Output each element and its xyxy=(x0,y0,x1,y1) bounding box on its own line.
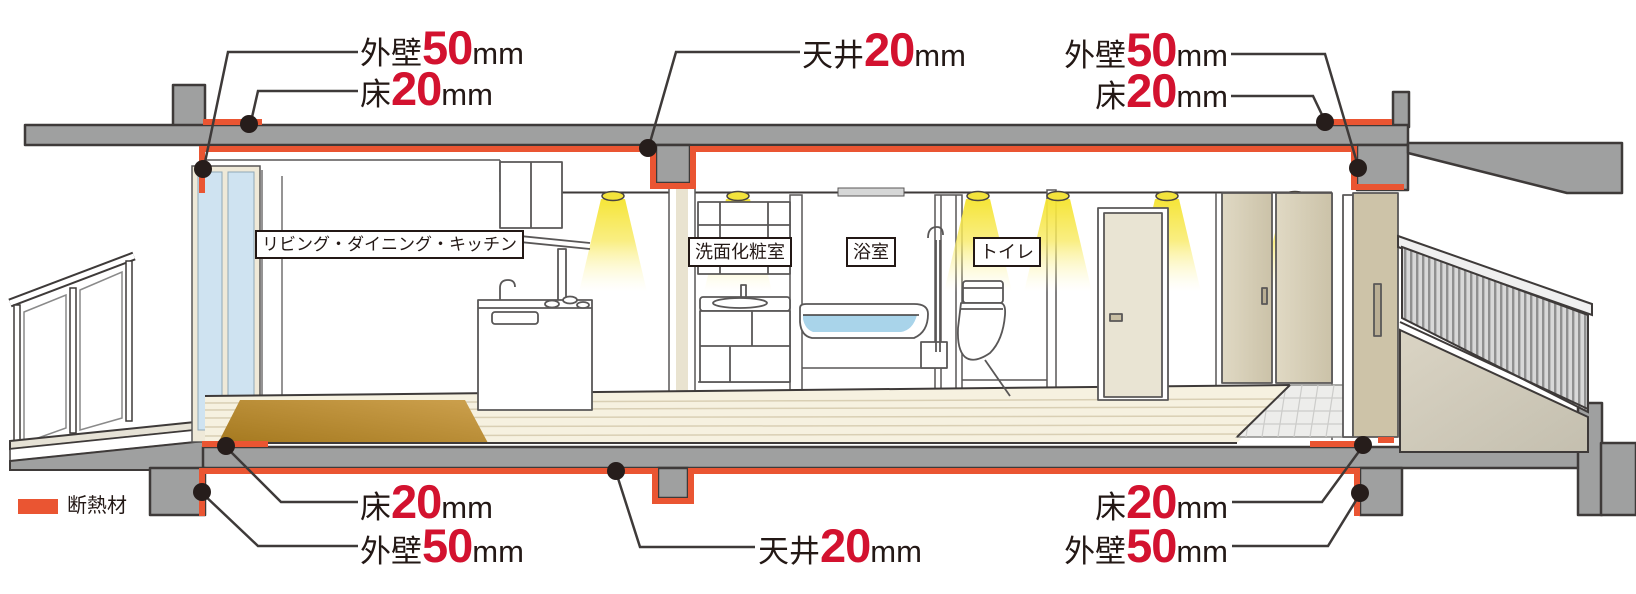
kitchen-faucet xyxy=(500,280,515,300)
bath-water xyxy=(803,315,917,332)
ldk-rug xyxy=(218,400,488,443)
hall-door xyxy=(1098,208,1168,400)
downlight-icon xyxy=(579,192,647,293)
bath-ceiling-vent xyxy=(838,188,904,196)
room-label-bathroom: 浴室 xyxy=(846,237,896,267)
upper-wall-stub-right xyxy=(1393,92,1409,127)
toilet xyxy=(958,281,1010,396)
insulation-cross-section-diagram: リビング・ダイニング・キッチン 洗面化粧室 浴室 トイレ 外壁50mm 床20m… xyxy=(0,0,1636,594)
room-label-toilet: トイレ xyxy=(973,237,1041,267)
cross-section-drawing xyxy=(0,0,1636,594)
corridor-edge xyxy=(1601,443,1636,515)
insulation-legend-swatch xyxy=(18,499,58,514)
floors xyxy=(205,385,1355,443)
kitchen xyxy=(478,162,592,410)
room-label-ldk: リビング・ダイニング・キッチン xyxy=(255,230,524,259)
callout-top-right-floor: 床20mm xyxy=(1095,67,1228,114)
insulation-legend: 断熱材 xyxy=(18,496,127,516)
callout-bottom-right-floor: 床20mm xyxy=(1095,478,1228,525)
callout-top-left-floor: 床20mm xyxy=(360,65,493,112)
top-beam xyxy=(656,145,690,183)
balcony xyxy=(10,256,205,470)
callout-bottom-left-floor: 床20mm xyxy=(360,478,493,525)
window-glass xyxy=(198,172,222,430)
callout-bottom-right-wall: 外壁50mm xyxy=(1064,522,1228,569)
corridor-header xyxy=(1408,143,1622,193)
callout-top-left-wall: 外壁50mm xyxy=(360,24,524,71)
window-glass xyxy=(228,172,254,424)
stair-corridor xyxy=(1398,236,1592,452)
upper-wall-stub-left xyxy=(173,85,205,127)
callout-top-center-ceiling: 天井20mm xyxy=(802,26,966,73)
entrance-door xyxy=(1343,193,1398,437)
callout-bottom-left-wall: 外壁50mm xyxy=(360,522,524,569)
callout-bottom-center-ceiling: 天井20mm xyxy=(758,522,922,569)
ceiling-wall-insulation-top xyxy=(202,149,1404,193)
bottom-slab xyxy=(203,447,1601,468)
closet xyxy=(1222,193,1332,383)
insulation-legend-label: 断熱材 xyxy=(67,496,127,516)
bottom-beam xyxy=(658,468,688,498)
top-slab xyxy=(25,125,1408,145)
room-label-washroom: 洗面化粧室 xyxy=(688,237,792,267)
